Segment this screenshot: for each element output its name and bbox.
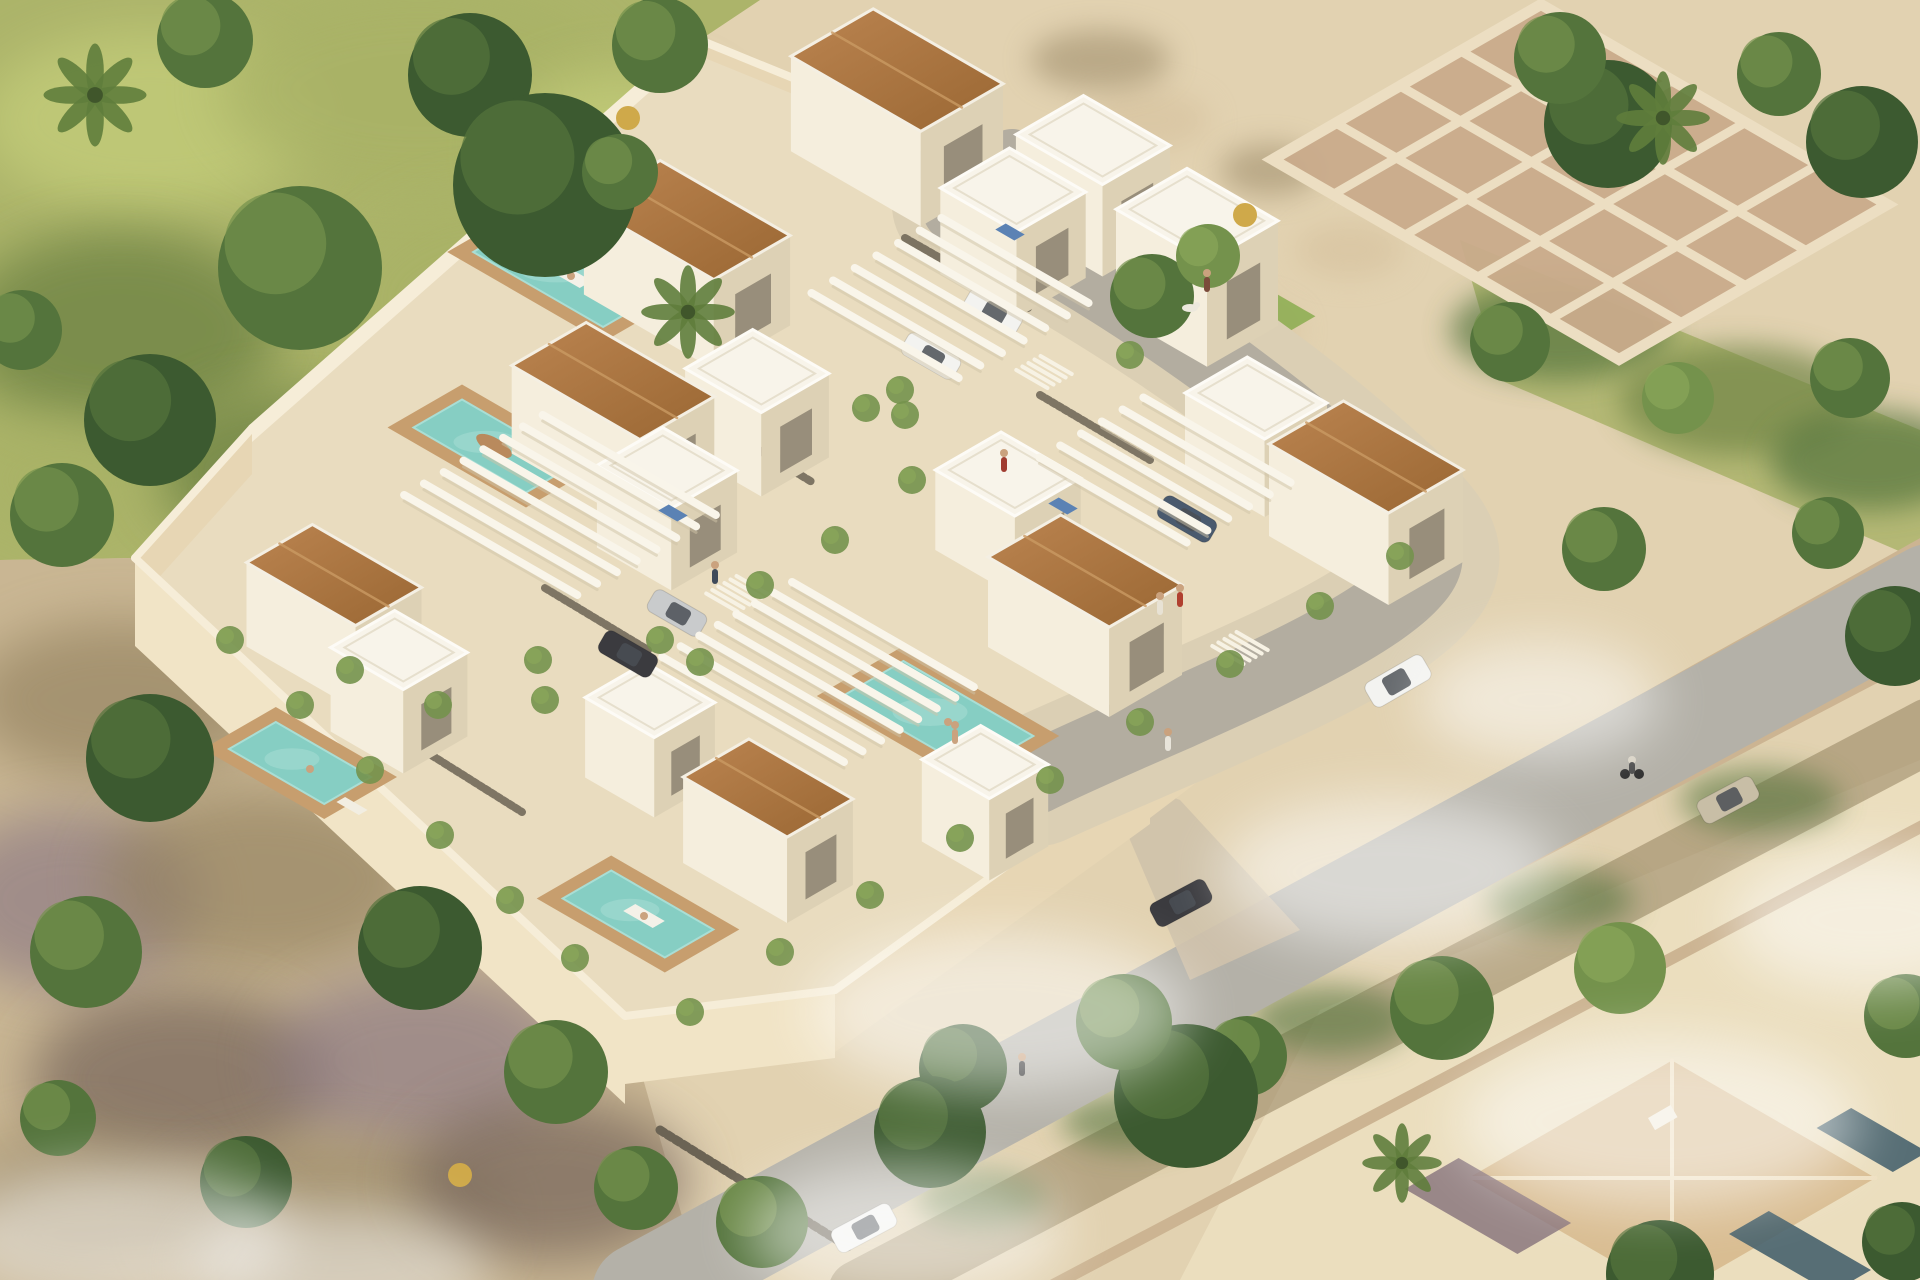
canopy-light <box>1578 926 1635 983</box>
person-dog-walker <box>1203 269 1211 292</box>
canopy-light <box>1565 510 1617 562</box>
tree <box>30 896 142 1008</box>
person-pool-side <box>951 721 959 744</box>
canopy-light <box>363 891 440 968</box>
palm-crown <box>681 305 695 319</box>
shrub-light <box>768 940 784 956</box>
tree <box>1514 12 1606 104</box>
tree <box>1792 497 1864 569</box>
person-body <box>1204 277 1210 292</box>
person-head <box>1164 728 1172 736</box>
shrub-light <box>526 648 542 664</box>
canopy-light <box>1473 305 1523 355</box>
person-walker <box>711 561 719 584</box>
swimmer <box>944 718 952 726</box>
shrub-light <box>1218 652 1234 668</box>
swimmer <box>306 765 314 773</box>
person-head <box>1203 269 1211 277</box>
shrub-light <box>1308 594 1324 610</box>
tree <box>218 186 382 350</box>
person-body <box>1001 457 1007 472</box>
palm-tree <box>1362 1123 1442 1203</box>
dog-head <box>1194 302 1200 308</box>
shrub-light <box>1388 544 1404 560</box>
person-head <box>951 721 959 729</box>
canopy-light <box>1810 90 1879 159</box>
flowering-shrub <box>1233 203 1257 227</box>
person-balcony <box>1176 584 1184 607</box>
canopy-light <box>1849 590 1911 652</box>
shrub-light <box>854 396 870 412</box>
shrub-light <box>498 888 514 904</box>
shrub-light <box>563 946 579 962</box>
palm-crown <box>1396 1157 1408 1169</box>
canopy-light <box>1865 1205 1915 1255</box>
flowering-shrub <box>448 1163 472 1187</box>
person-balcony <box>1156 592 1164 615</box>
shrub-light <box>858 883 874 899</box>
person-body <box>952 729 958 744</box>
development-aerial-view <box>0 0 1920 1280</box>
tree <box>1390 956 1494 1060</box>
canopy-light <box>1645 365 1690 410</box>
canopy-light <box>1394 960 1458 1024</box>
canopy-light <box>1813 341 1863 391</box>
shrub-light <box>1128 710 1144 726</box>
haze-patch <box>1420 640 1660 760</box>
tree <box>10 463 114 567</box>
tree <box>582 134 658 210</box>
canopy-light <box>585 137 632 184</box>
shrub-light <box>426 693 442 709</box>
shrub-light <box>648 628 664 644</box>
canopy-light <box>1113 257 1165 309</box>
person-head <box>711 561 719 569</box>
rider-body <box>1629 762 1635 774</box>
palm-crown <box>1656 111 1670 125</box>
haze-patch <box>1220 797 1560 947</box>
aerial-render-canvas <box>0 0 1920 1280</box>
sand-patch <box>1030 30 1170 90</box>
tree <box>358 886 482 1010</box>
tree <box>504 1020 608 1124</box>
tree <box>612 0 708 93</box>
palm-tree <box>44 44 147 147</box>
shrub-light <box>428 823 444 839</box>
person-head <box>1176 584 1184 592</box>
canopy-light <box>91 699 170 778</box>
person-body <box>1157 600 1163 615</box>
canopy-light <box>616 1 676 61</box>
canopy-light <box>1740 35 1792 87</box>
canopy-light <box>1179 227 1219 267</box>
shrub-light <box>218 628 234 644</box>
sunbather <box>640 912 648 920</box>
shrub-light <box>288 693 304 709</box>
canopy-light <box>14 467 78 531</box>
tree <box>20 1080 96 1156</box>
canopy-light <box>460 100 574 214</box>
wheel <box>1634 769 1644 779</box>
palm-tree <box>641 265 735 359</box>
shrub-light <box>1118 343 1134 359</box>
canopy-light <box>225 193 327 295</box>
shrub-light <box>748 573 764 589</box>
canopy-light <box>508 1024 572 1088</box>
palm-tree <box>1616 71 1710 165</box>
person-body <box>712 569 718 584</box>
shrub-light <box>1038 768 1054 784</box>
shrub-light <box>900 468 916 484</box>
tree <box>1642 362 1714 434</box>
wheel <box>1620 769 1630 779</box>
tree <box>594 1146 678 1230</box>
canopy-light <box>1795 500 1840 545</box>
flowering-shrub <box>616 106 640 130</box>
shrub-light <box>678 1000 694 1016</box>
canopy-light <box>878 1080 947 1149</box>
tree <box>1470 302 1550 382</box>
person-terrace <box>1000 449 1008 472</box>
person-body <box>1165 736 1171 751</box>
shrub-light <box>888 378 904 394</box>
shrub-light <box>823 528 839 544</box>
tree <box>84 354 216 486</box>
canopy-light <box>1518 16 1575 73</box>
tree <box>1737 32 1821 116</box>
person-head <box>1000 449 1008 457</box>
tree <box>1806 86 1918 198</box>
shrub-light <box>893 403 909 419</box>
palm-crown <box>87 87 103 103</box>
person-body <box>1177 592 1183 607</box>
tree <box>1574 922 1666 1014</box>
shrub-light <box>688 650 704 666</box>
shrub-light <box>533 688 549 704</box>
canopy-light <box>34 900 103 969</box>
shrub-light <box>948 826 964 842</box>
canopy-light <box>597 1149 649 1201</box>
shrub-light <box>358 758 374 774</box>
person-gate <box>1164 728 1172 751</box>
canopy-light <box>413 18 490 95</box>
haze-patch <box>1460 1037 1860 1207</box>
canopy-light <box>89 359 171 441</box>
tree <box>1810 338 1890 418</box>
canopy-light <box>23 1083 70 1130</box>
haze-patch <box>810 932 1190 1092</box>
shrub-light <box>338 658 354 674</box>
tree <box>86 694 214 822</box>
person-head <box>1156 592 1164 600</box>
tree <box>1562 507 1646 591</box>
